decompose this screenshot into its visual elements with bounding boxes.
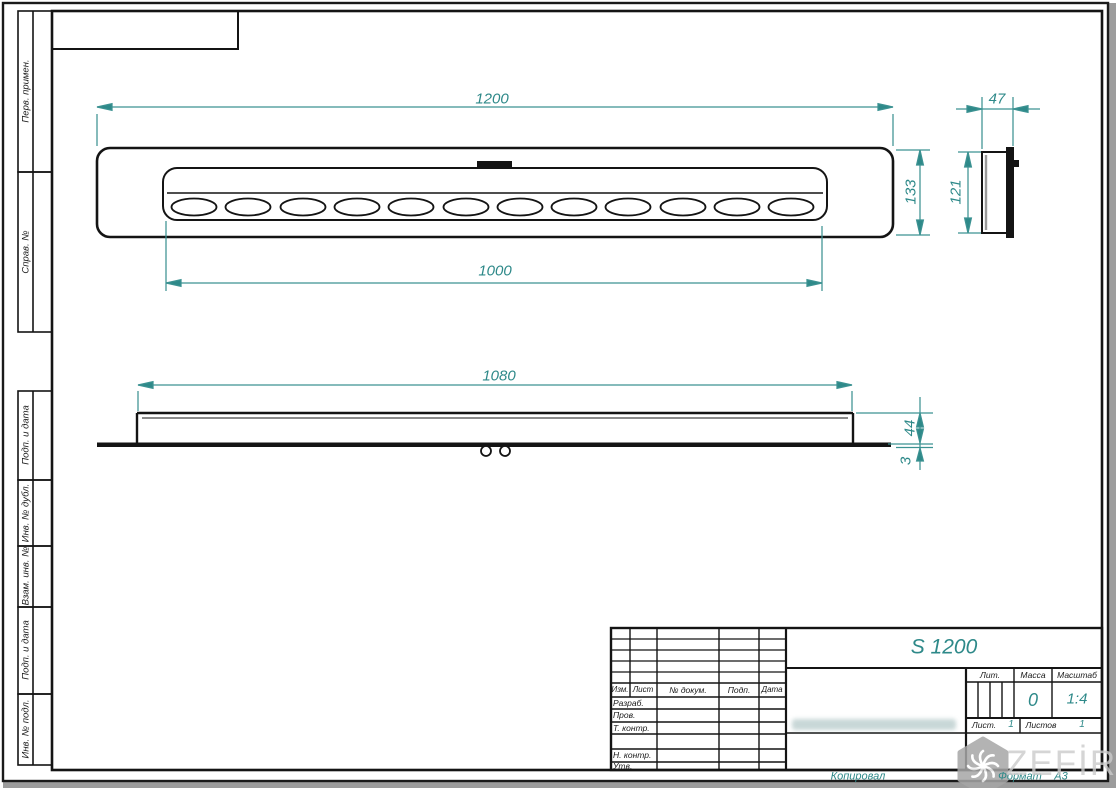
col-doc: № докум. — [669, 686, 706, 695]
sheets-label: Листов — [1026, 721, 1057, 730]
margin-stamp-inv-podl: Инв. № подл. — [21, 700, 32, 759]
zefire-wordmark: ZEFİRE — [1006, 744, 1116, 784]
sheets-value: 1 — [1079, 720, 1085, 730]
mass-value: 0 — [1028, 691, 1038, 709]
margin-stamp-perv-primen: Перв. примен. — [21, 59, 32, 122]
sheet-border — [3, 3, 1108, 781]
mass-label: Масса — [1020, 671, 1045, 680]
lit-label: Лит. — [980, 671, 1000, 680]
side-view — [97, 413, 891, 456]
hook-loop — [481, 446, 491, 456]
margin-stamp-inv-dubl: Инв. № дубл. — [21, 484, 32, 542]
row-t-kontr: Т. контр. — [613, 724, 650, 733]
row-utv: Утв. — [613, 762, 632, 771]
scale-value: 1:4 — [1067, 692, 1088, 707]
dim-overall-length: 1200 — [475, 92, 508, 107]
row-razrab: Разраб. — [613, 699, 644, 708]
drawing-designation: S 1200 — [911, 637, 978, 658]
sheet-value: 1 — [1008, 720, 1014, 730]
hook-loop — [500, 446, 510, 456]
illegible-text — [792, 719, 956, 730]
dim-flange-thickness: 3 — [899, 457, 914, 465]
top-view — [97, 148, 893, 237]
margin-stamp-podp-data-1: Подп. и дата — [21, 405, 32, 464]
dim-overall-width: 133 — [904, 179, 919, 204]
end-view — [982, 147, 1019, 238]
margin-stamp-sprav-no: Справ. № — [21, 230, 32, 273]
sheet-label: Лист. — [972, 721, 996, 730]
col-izm: Изм. — [611, 686, 628, 694]
dim-depth: 47 — [989, 92, 1006, 107]
dim-slot-row-length: 1000 — [478, 264, 511, 279]
top-view-tray — [163, 168, 827, 220]
col-date: Дата — [761, 686, 782, 694]
dim-mount-length: 1080 — [482, 369, 515, 384]
sheet-shadow — [3, 3, 1116, 788]
corner-stamp-box — [52, 11, 238, 49]
end-flange — [1006, 147, 1014, 238]
col-list: Лист — [633, 686, 654, 694]
margin-stamp-podp-data-2: Подп. и дата — [21, 620, 32, 679]
dim-height: 121 — [949, 179, 964, 204]
burner-slots — [172, 199, 814, 216]
margin-stamp-vzam-inv: Взам. инв. № — [21, 547, 32, 606]
drawing-sheet: 1200 1000 133 47 121 1080 44 3 Перв. при… — [0, 0, 1116, 788]
scale-label: Масштаб — [1057, 671, 1097, 680]
copied-label: Копировал — [831, 772, 886, 783]
drawing-canvas — [0, 0, 1116, 788]
slider-handle — [477, 161, 512, 168]
row-prov: Пров. — [613, 711, 635, 720]
end-tab — [1014, 160, 1020, 167]
row-n-kontr: Н. контр. — [613, 751, 651, 760]
mount-flange — [97, 443, 891, 448]
col-sign: Подп. — [728, 686, 751, 695]
dim-body-height: 44 — [903, 420, 918, 437]
